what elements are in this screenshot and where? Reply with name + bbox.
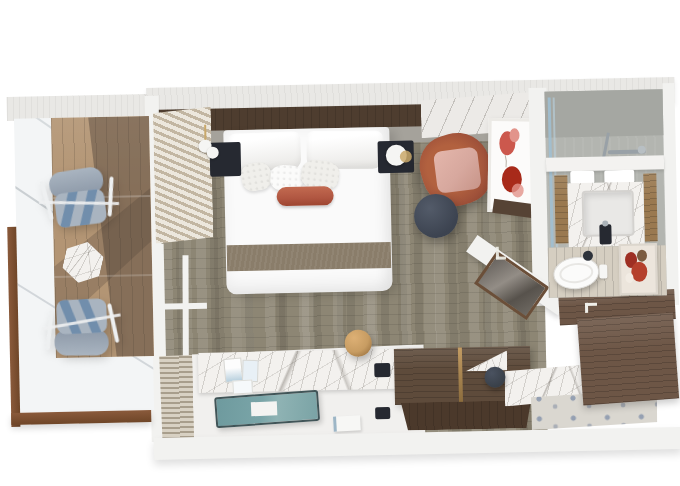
chair-seat-cushion (54, 188, 108, 228)
toilet-seat-line (558, 261, 594, 285)
cushion-stripe (79, 188, 98, 228)
wardrobe-wood-wall (577, 313, 679, 406)
armchair-cushion (433, 147, 482, 194)
stateroom-floorplan-render (0, 0, 680, 486)
bathroom-artwork-canvas (621, 245, 652, 289)
cushion-stripe (59, 188, 78, 228)
cushion-stripe (56, 298, 82, 334)
bathroom-artwork (619, 243, 658, 295)
door-frame-mark (585, 303, 588, 313)
pendant-lamp-stem (204, 125, 206, 141)
flush-plate (599, 264, 607, 278)
postcard (232, 380, 253, 395)
faucet-head (602, 220, 608, 226)
floor-door-mark (496, 247, 499, 259)
bed-runner (227, 242, 392, 271)
vanity-ledge (546, 155, 664, 171)
chair-arm (108, 176, 114, 216)
balcony-frame-bottom (11, 410, 151, 425)
scene (0, 0, 680, 486)
poppy-artwork-canvas (491, 121, 530, 204)
window-mullion-h (157, 303, 207, 310)
deck-chair-2 (45, 289, 118, 360)
white-book (333, 415, 361, 431)
chair-frame-bar (39, 201, 119, 205)
chair-arm (46, 310, 54, 350)
deck-chair-1 (42, 165, 115, 233)
toilet (553, 250, 608, 293)
toilet-bowl (552, 254, 602, 292)
bolster-pillow (276, 186, 333, 206)
vanity-side-wood (643, 173, 657, 241)
power-outlet (374, 363, 390, 377)
faucet (599, 224, 611, 244)
shower-far-wall (545, 89, 664, 137)
power-outlet (375, 407, 390, 419)
tray-card (251, 401, 278, 416)
bench-groove (458, 347, 463, 403)
